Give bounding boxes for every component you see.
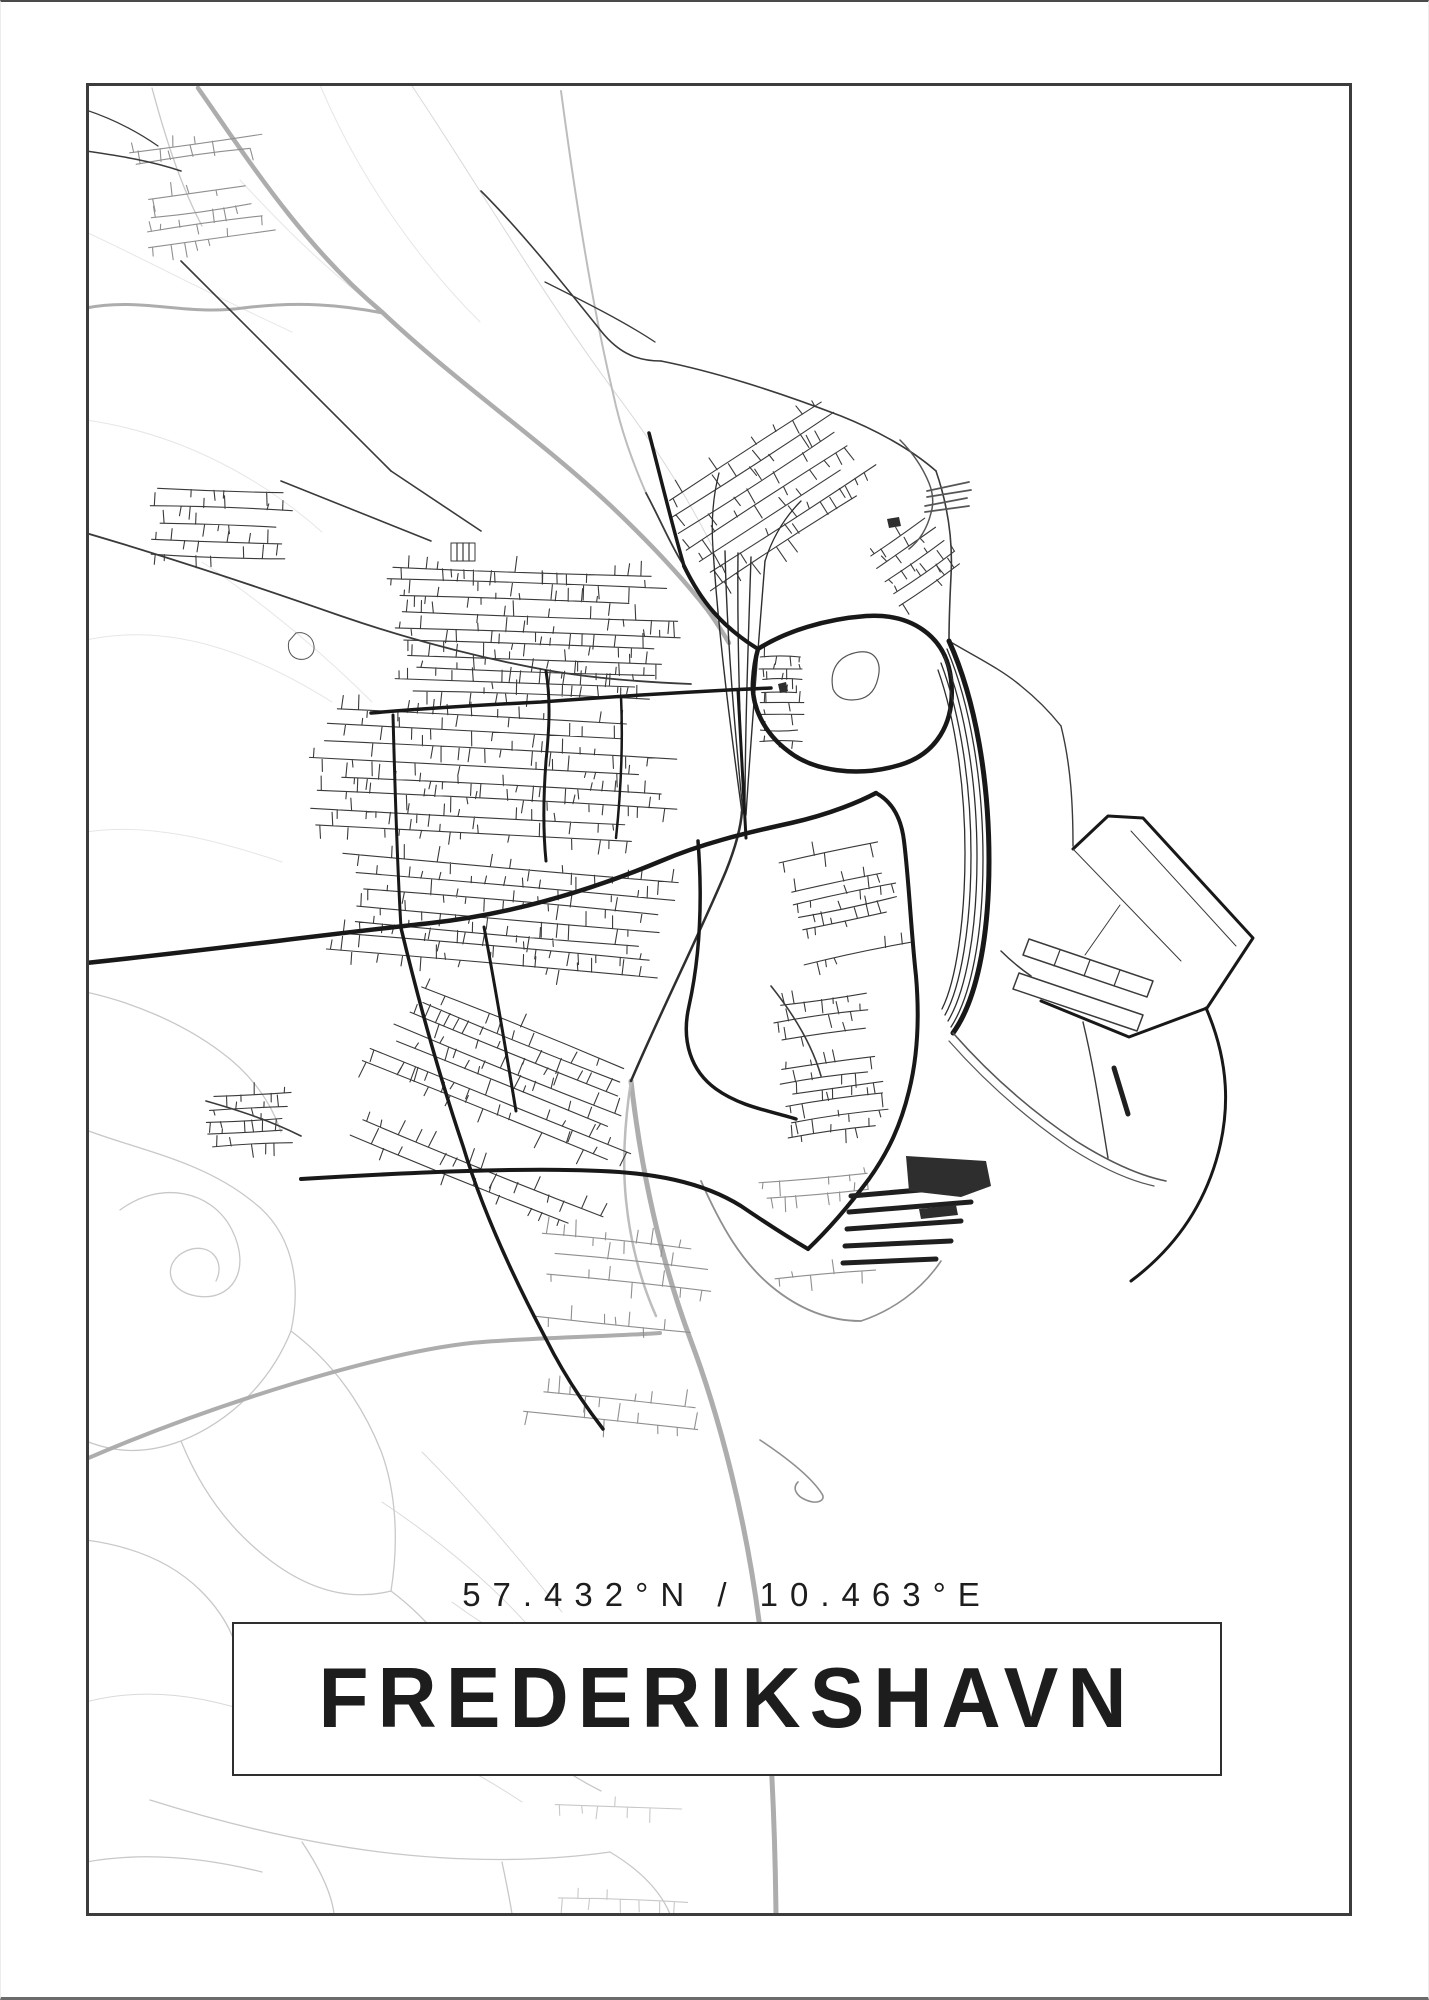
road-path: [797, 889, 898, 925]
road-path: [395, 663, 635, 697]
road-path: [86, 1333, 660, 1459]
road-path: [354, 907, 640, 962]
road-path: [120, 1193, 240, 1297]
road-path: [779, 1060, 870, 1098]
road-path: [906, 1156, 991, 1197]
road-path: [86, 232, 292, 332]
road-path: [147, 222, 277, 263]
district-streets: [759, 647, 804, 748]
road-path: [86, 110, 158, 146]
road-path: [808, 793, 918, 1249]
road-path: [392, 552, 651, 591]
road-path: [1061, 726, 1073, 846]
poster: 57.432°N / 10.463°E FREDERIKSHAVN: [0, 0, 1429, 2000]
road-path: [545, 1259, 712, 1307]
road-path: [1054, 950, 1060, 966]
road-path: [761, 710, 804, 725]
road-path: [401, 928, 603, 1429]
district-streets: [204, 1081, 294, 1160]
road-path: [391, 471, 481, 531]
road-path: [481, 191, 661, 361]
road-path: [150, 493, 293, 523]
road-path: [893, 555, 967, 617]
road-path: [558, 1888, 688, 1919]
road-path: [760, 1440, 823, 1502]
road-path: [387, 565, 667, 603]
road-path: [86, 1130, 295, 1331]
road-path: [845, 1241, 951, 1246]
road-path: [703, 454, 884, 585]
road-path: [927, 490, 971, 497]
road-path: [787, 1114, 877, 1151]
road-path: [151, 541, 285, 571]
road-path: [395, 613, 681, 653]
road-path: [207, 1118, 282, 1135]
road-path: [701, 1181, 861, 1321]
road-path: [147, 172, 247, 212]
road-path: [610, 1852, 670, 1914]
road-path: [86, 635, 332, 702]
road-path: [938, 670, 965, 1009]
road-path: [86, 1331, 291, 1450]
road-path: [320, 85, 480, 322]
road-path: [887, 517, 901, 528]
road-path: [502, 1862, 512, 1914]
road-path: [86, 1540, 241, 1681]
road-path: [1131, 1008, 1226, 1281]
road-path: [355, 858, 676, 910]
road-path: [86, 304, 383, 313]
road-path: [342, 838, 680, 896]
road-path: [1013, 973, 1143, 1031]
city-title-box: FREDERIKSHAVN: [232, 1622, 1222, 1776]
road-path: [759, 1168, 869, 1198]
road-path: [791, 1071, 884, 1105]
road-path: [791, 1103, 890, 1135]
road-path: [128, 124, 264, 168]
road-path: [785, 1085, 885, 1121]
road-path: [212, 1132, 293, 1160]
road-path: [1023, 939, 1153, 997]
road-path: [213, 1081, 291, 1108]
road-path: [301, 1170, 808, 1249]
road-path: [1114, 1068, 1128, 1114]
road-path: [356, 1047, 613, 1175]
road-path: [417, 989, 625, 1097]
road-path: [1084, 960, 1090, 976]
road-path: [1114, 970, 1120, 986]
road-path: [791, 870, 898, 913]
road-path: [309, 742, 640, 789]
road-path: [1131, 831, 1236, 946]
road-path: [317, 775, 678, 824]
road-path: [544, 671, 549, 861]
road-path: [302, 1842, 334, 1914]
road-path: [181, 1441, 391, 1595]
road-path: [753, 616, 952, 772]
road-path: [847, 1221, 961, 1229]
road-path: [686, 841, 796, 1119]
road-path: [725, 551, 743, 813]
road-path: [671, 422, 842, 547]
road-path: [400, 582, 630, 616]
district-streets: [861, 507, 969, 616]
coordinates-label: 57.432°N / 10.463°E: [232, 1576, 1222, 1616]
road-path: [631, 1081, 776, 1916]
road-path: [646, 493, 684, 566]
road-path: [616, 696, 622, 838]
road-path: [703, 484, 866, 605]
road-path: [759, 664, 802, 679]
road-path: [522, 1394, 700, 1447]
road-path: [150, 1800, 610, 1860]
road-path: [760, 647, 800, 666]
road-path: [86, 420, 322, 532]
road-path: [382, 1502, 542, 1642]
road-path: [341, 762, 662, 808]
road-path: [542, 1375, 697, 1424]
road-path: [202, 562, 372, 702]
road-path: [776, 829, 880, 877]
road-path: [315, 812, 632, 856]
road-path: [927, 482, 969, 491]
road-path: [1085, 905, 1120, 955]
road-path: [412, 86, 712, 546]
road-path: [1001, 951, 1031, 976]
road-path: [778, 682, 788, 693]
district-streets: [383, 552, 683, 714]
road-path: [800, 898, 888, 939]
road-path: [157, 488, 283, 506]
road-path: [281, 481, 431, 541]
road-path: [843, 1259, 936, 1263]
road-path: [393, 715, 401, 928]
road-path: [86, 829, 282, 862]
road-path: [86, 793, 876, 963]
road-path: [779, 981, 868, 1019]
road-path: [555, 1795, 682, 1824]
road-path: [780, 1016, 866, 1049]
road-path: [832, 652, 879, 700]
road-path: [953, 1033, 1166, 1181]
road-path: [802, 931, 913, 977]
road-path: [712, 473, 719, 549]
road-path: [86, 151, 181, 171]
district-streets: [128, 124, 277, 264]
road-path: [357, 1104, 609, 1231]
road-path: [86, 1857, 262, 1872]
road-path: [160, 510, 277, 538]
district-streets: [305, 693, 682, 858]
road-path: [146, 203, 264, 241]
road-path: [760, 692, 804, 711]
road-path: [561, 91, 646, 493]
road-path: [1073, 849, 1181, 961]
road-path: [765, 501, 801, 561]
road-path: [1083, 1022, 1108, 1158]
district-streets: [325, 837, 679, 994]
city-title: FREDERIKSHAVN: [318, 1650, 1135, 1748]
district-streets: [776, 826, 913, 978]
